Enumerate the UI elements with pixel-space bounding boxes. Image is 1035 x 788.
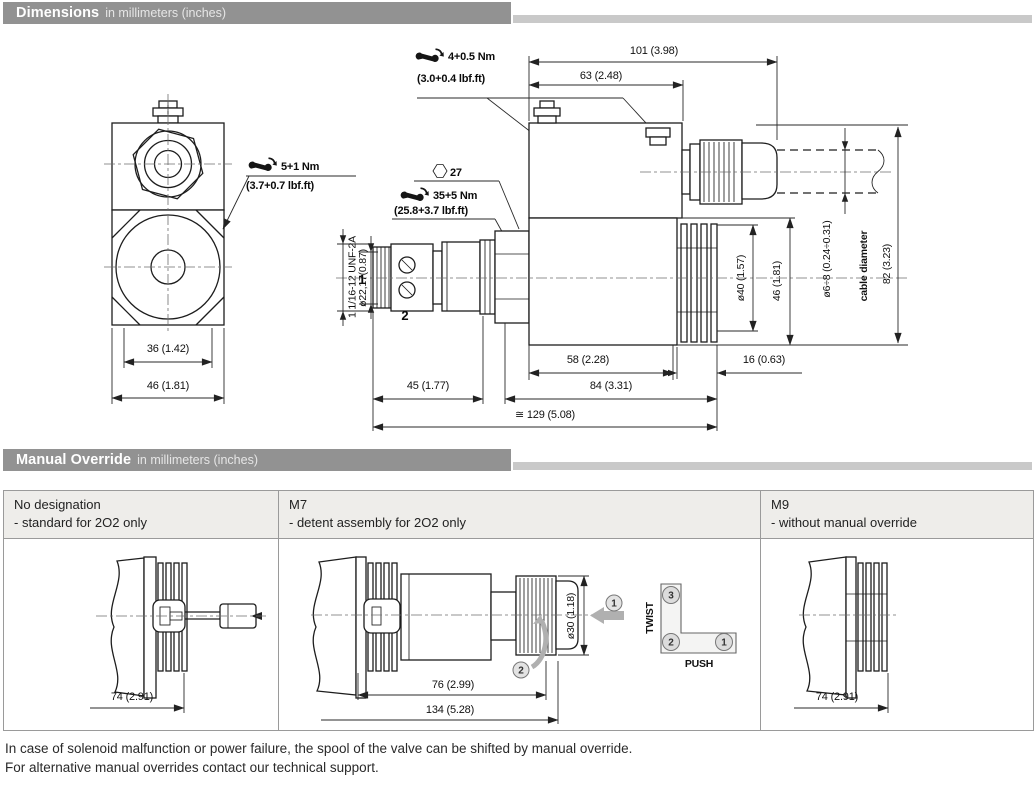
dim-101-label: 101 (3.98)	[630, 45, 678, 57]
torque-top-lbf: (3.0+0.4 lbf.ft)	[417, 73, 486, 85]
override-col-header-m9: M9 - without manual override	[761, 491, 1033, 539]
torque-cart-nm: 35+5 Nm	[433, 190, 478, 202]
dimensions-drawing: 36 (1.42) 46 (1.81) 5+1 Nm (3.7+0.7 lbf.…	[0, 30, 1035, 445]
dim-74-label: 74 (2.91)	[816, 691, 858, 703]
torque-left-nm: 5+1 Nm	[281, 161, 320, 173]
manual-override-table: No designation - standard for 2O2 only M…	[3, 490, 1034, 731]
dim-dia40-label: ø40 (1.57)	[735, 255, 747, 301]
dim-45-label: 45 (1.77)	[407, 380, 449, 392]
hexagon-icon	[433, 165, 447, 178]
torque-top-nm: 4+0.5 Nm	[448, 51, 495, 63]
hex-size-label: 27	[450, 167, 462, 179]
override-cell-m9: 74 (2.91)	[761, 539, 1033, 730]
twist-label: TWIST	[644, 601, 656, 633]
torque-cart-lbf: (25.8+3.7 lbf.ft)	[394, 205, 468, 217]
section-title: Manual Override	[16, 452, 131, 468]
override-col-header-no-designation: No designation - standard for 2O2 only	[4, 491, 279, 539]
section-subtitle: in millimeters (inches)	[105, 6, 226, 20]
section-title: Dimensions	[16, 5, 99, 21]
dim-129-label: ≅ 129 (5.08)	[515, 409, 575, 421]
dim-36-label: 36 (1.42)	[147, 343, 189, 355]
cartridge-diameter-label: ø22,17(0.87)	[357, 249, 369, 307]
dim-134-label: 134 (5.28)	[426, 704, 474, 716]
step-3-badge: 3	[668, 591, 674, 602]
override-desc: - detent assembly for 2O2 only	[289, 514, 750, 532]
section-header-tail	[513, 462, 1032, 470]
step-1-badge: 1	[721, 638, 727, 649]
section-header-tail	[513, 15, 1032, 23]
dim-63-label: 63 (2.48)	[580, 70, 622, 82]
dim-74-label: 74 (2.91)	[111, 691, 153, 703]
dim-82-label: 82 (3.23)	[881, 244, 893, 284]
footer-line-2: For alternative manual overrides contact…	[5, 758, 632, 777]
footer-note: In case of solenoid malfunction or power…	[5, 739, 632, 777]
dim-76-label: 76 (2.99)	[432, 679, 474, 691]
override-standard-drawing: 74 (2.91)	[4, 539, 279, 729]
step-2-badge: 2	[518, 666, 524, 677]
override-m9-drawing: 74 (2.91)	[761, 539, 1032, 729]
override-col-header-m7: M7 - detent assembly for 2O2 only	[279, 491, 761, 539]
step-2-badge: 2	[668, 638, 674, 649]
dim-16-label: 16 (0.63)	[743, 354, 785, 366]
cable-diameter-label: cable diameter	[858, 231, 870, 302]
dim-84-label: 84 (3.31)	[590, 380, 632, 392]
dim-46-left-label: 46 (1.81)	[147, 380, 189, 392]
dim-cable-dia-label: ø6÷8 (0.24÷0.31)	[821, 220, 833, 297]
manual-override-section-header: Manual Override in millimeters (inches)	[3, 449, 511, 471]
override-cell-m7: ø30 (1.18) 1 2 76 (2.99)	[279, 539, 761, 730]
twist-push-diagram: 3 2 1 TWIST PUSH	[644, 584, 736, 670]
front-view-drawing: 36 (1.42) 46 (1.81)	[104, 94, 232, 404]
override-m7-drawing: ø30 (1.18) 1 2 76 (2.99)	[279, 539, 760, 729]
override-code: No designation	[14, 496, 268, 514]
override-desc: - standard for 2O2 only	[14, 514, 268, 532]
footer-line-1: In case of solenoid malfunction or power…	[5, 739, 632, 758]
override-code: M9	[771, 496, 1023, 514]
torque-annotation-left: 5+1 Nm (3.7+0.7 lbf.ft)	[223, 158, 356, 229]
datasheet-page: Dimensions in millimeters (inches)	[0, 0, 1035, 788]
push-label: PUSH	[685, 658, 713, 670]
cartridge-dims: 1 1/16-12 UNF-2A ø22,17(0.87)	[337, 229, 378, 326]
section-subtitle: in millimeters (inches)	[137, 453, 258, 467]
dim-dia30-label: ø30 (1.18)	[565, 593, 577, 639]
torque-annotation-cartridge: 27 35+5 Nm (25.8+3.7 lbf.ft)	[392, 165, 519, 242]
dim-46-right-label: 46 (1.81)	[771, 261, 783, 301]
override-desc: - without manual override	[771, 514, 1023, 532]
torque-left-lbf: (3.7+0.7 lbf.ft)	[246, 180, 315, 192]
step-1-badge: 1	[611, 599, 617, 610]
dimensions-section-header: Dimensions in millimeters (inches)	[3, 2, 511, 24]
dim-58-label: 58 (2.28)	[567, 354, 609, 366]
override-cell-standard: 74 (2.91)	[4, 539, 279, 730]
port-2-label: 2	[401, 308, 408, 323]
override-code: M7	[289, 496, 750, 514]
